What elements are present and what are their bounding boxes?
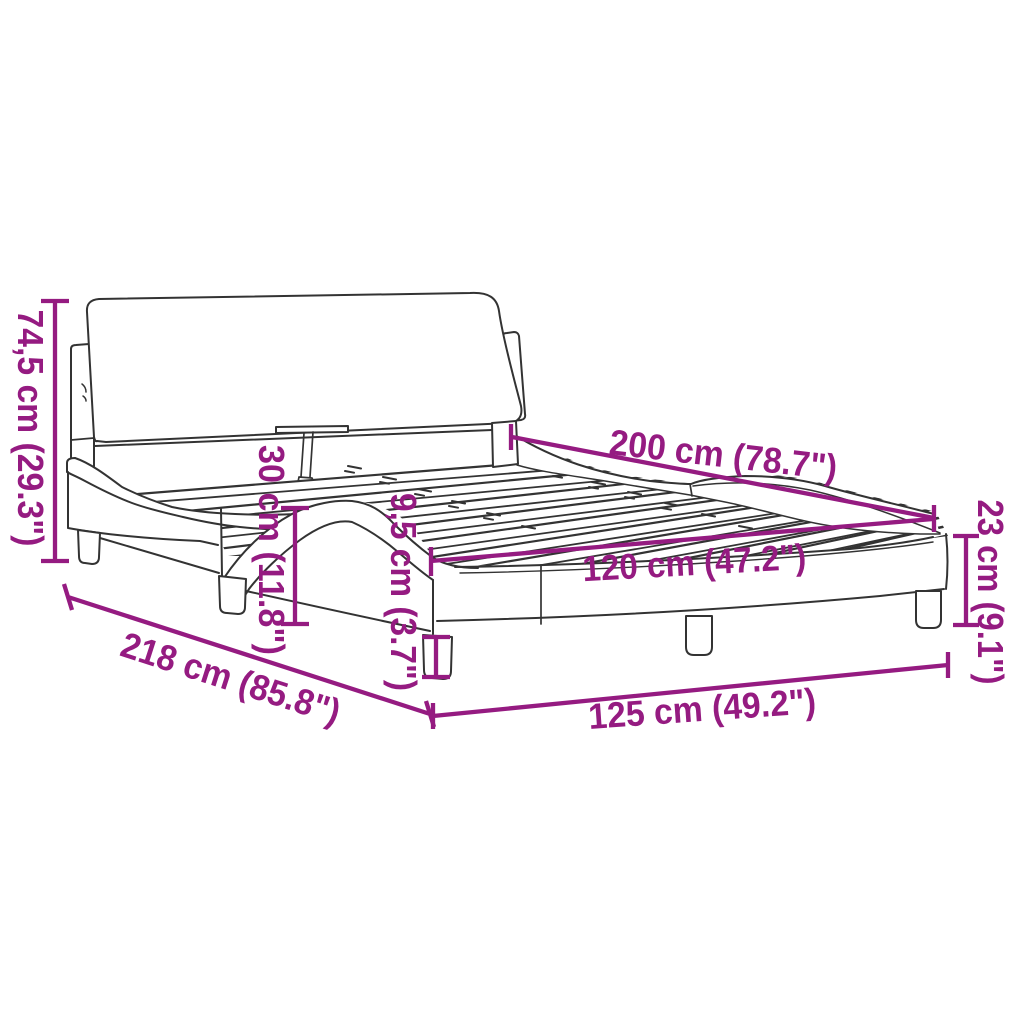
svg-text:125 cm (49.2"): 125 cm (49.2")	[587, 680, 817, 737]
svg-text:23 cm (9.1"): 23 cm (9.1")	[970, 500, 1011, 685]
svg-text:30 cm (11.8"): 30 cm (11.8")	[251, 445, 292, 655]
svg-text:74,5 cm (29.3"): 74,5 cm (29.3")	[10, 310, 51, 547]
svg-text:9,5 cm (3.7"): 9,5 cm (3.7")	[383, 493, 424, 691]
svg-text:218 cm (85.8"): 218 cm (85.8")	[116, 624, 346, 733]
